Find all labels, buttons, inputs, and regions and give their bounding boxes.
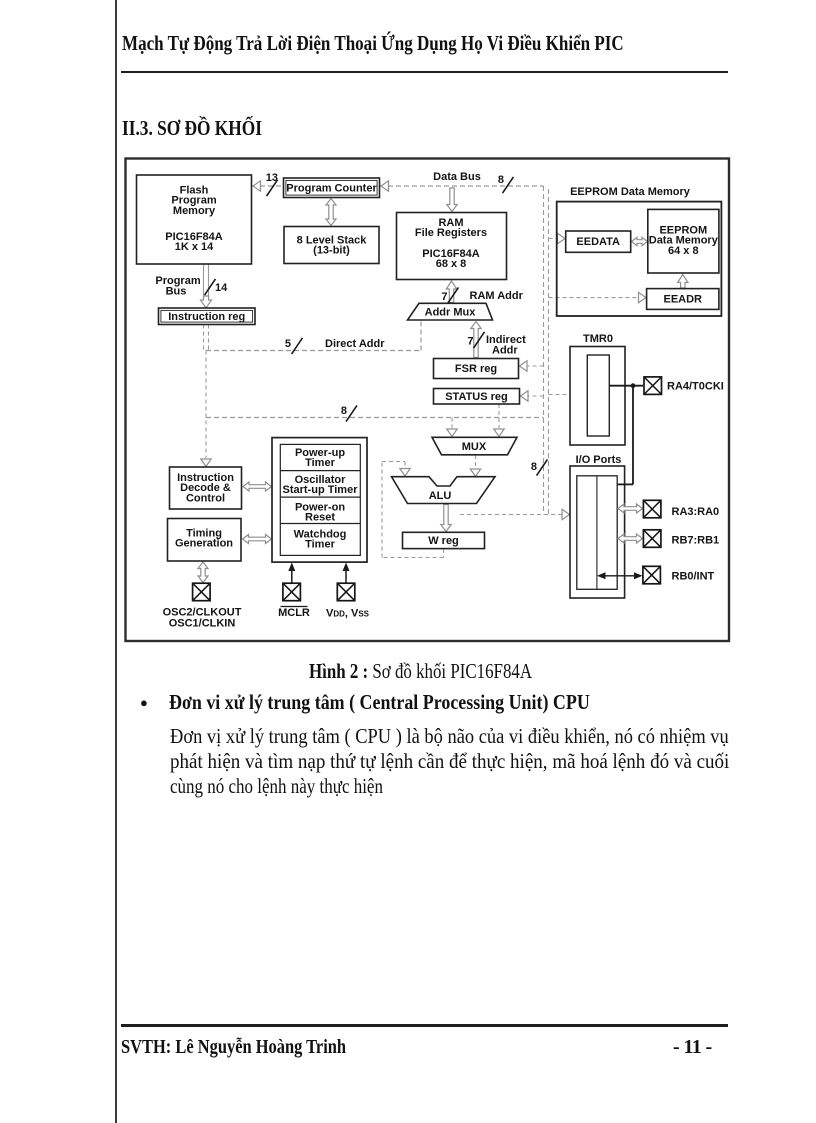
svg-text:RB0/INT: RB0/INT bbox=[672, 571, 715, 583]
svg-text:Program Counter: Program Counter bbox=[286, 182, 377, 194]
svg-text:EEDATA: EEDATA bbox=[576, 236, 620, 248]
svg-text:8: 8 bbox=[498, 174, 504, 186]
svg-text:5: 5 bbox=[285, 338, 291, 350]
svg-text:Data Bus: Data Bus bbox=[433, 171, 481, 183]
svg-text:RA3:RA0: RA3:RA0 bbox=[672, 506, 720, 518]
svg-text:RAM Addr: RAM Addr bbox=[470, 290, 524, 302]
svg-text:Timer: Timer bbox=[305, 457, 335, 469]
svg-text:7: 7 bbox=[441, 291, 447, 303]
svg-text:8: 8 bbox=[531, 461, 537, 473]
svg-text:TMR0: TMR0 bbox=[583, 333, 613, 345]
svg-text:VDD, VSS: VDD, VSS bbox=[326, 608, 370, 620]
svg-text:RA4/T0CKI: RA4/T0CKI bbox=[667, 381, 724, 393]
svg-text:Generation: Generation bbox=[175, 538, 233, 550]
svg-text:13: 13 bbox=[266, 172, 278, 184]
svg-text:Start-up Timer: Start-up Timer bbox=[283, 484, 359, 496]
svg-text:Timer: Timer bbox=[305, 539, 335, 551]
svg-text:Reset: Reset bbox=[305, 512, 335, 524]
svg-text:OSC1/CLKIN: OSC1/CLKIN bbox=[169, 618, 236, 630]
svg-text:ALU: ALU bbox=[429, 490, 452, 502]
svg-text:FSR reg: FSR reg bbox=[455, 363, 497, 375]
svg-text:W reg: W reg bbox=[428, 535, 459, 547]
svg-text:Addr Mux: Addr Mux bbox=[425, 307, 477, 319]
svg-text:MCLR: MCLR bbox=[278, 607, 310, 619]
svg-text:Bus: Bus bbox=[166, 286, 187, 298]
svg-text:Addr: Addr bbox=[492, 345, 518, 357]
svg-text:8: 8 bbox=[341, 405, 347, 417]
svg-text:File Registers: File Registers bbox=[415, 227, 487, 239]
svg-text:1K x 14: 1K x 14 bbox=[175, 241, 214, 253]
svg-text:Control: Control bbox=[186, 492, 225, 504]
svg-text:EEADR: EEADR bbox=[663, 294, 702, 306]
svg-text:STATUS reg: STATUS reg bbox=[445, 391, 508, 403]
svg-text:14: 14 bbox=[215, 282, 228, 294]
svg-text:Memory: Memory bbox=[173, 205, 216, 217]
svg-text:7: 7 bbox=[467, 336, 473, 348]
svg-text:I/O Ports: I/O Ports bbox=[576, 454, 622, 466]
svg-text:64 x 8: 64 x 8 bbox=[668, 245, 699, 257]
svg-text:Direct Addr: Direct Addr bbox=[325, 338, 385, 350]
svg-text:RB7:RB1: RB7:RB1 bbox=[672, 535, 720, 547]
svg-text:68 x 8: 68 x 8 bbox=[436, 258, 467, 270]
svg-text:(13-bit): (13-bit) bbox=[313, 245, 350, 257]
svg-text:Instruction reg: Instruction reg bbox=[168, 311, 245, 323]
svg-text:MUX: MUX bbox=[462, 441, 487, 453]
svg-text:EEPROM Data Memory: EEPROM Data Memory bbox=[570, 186, 691, 198]
